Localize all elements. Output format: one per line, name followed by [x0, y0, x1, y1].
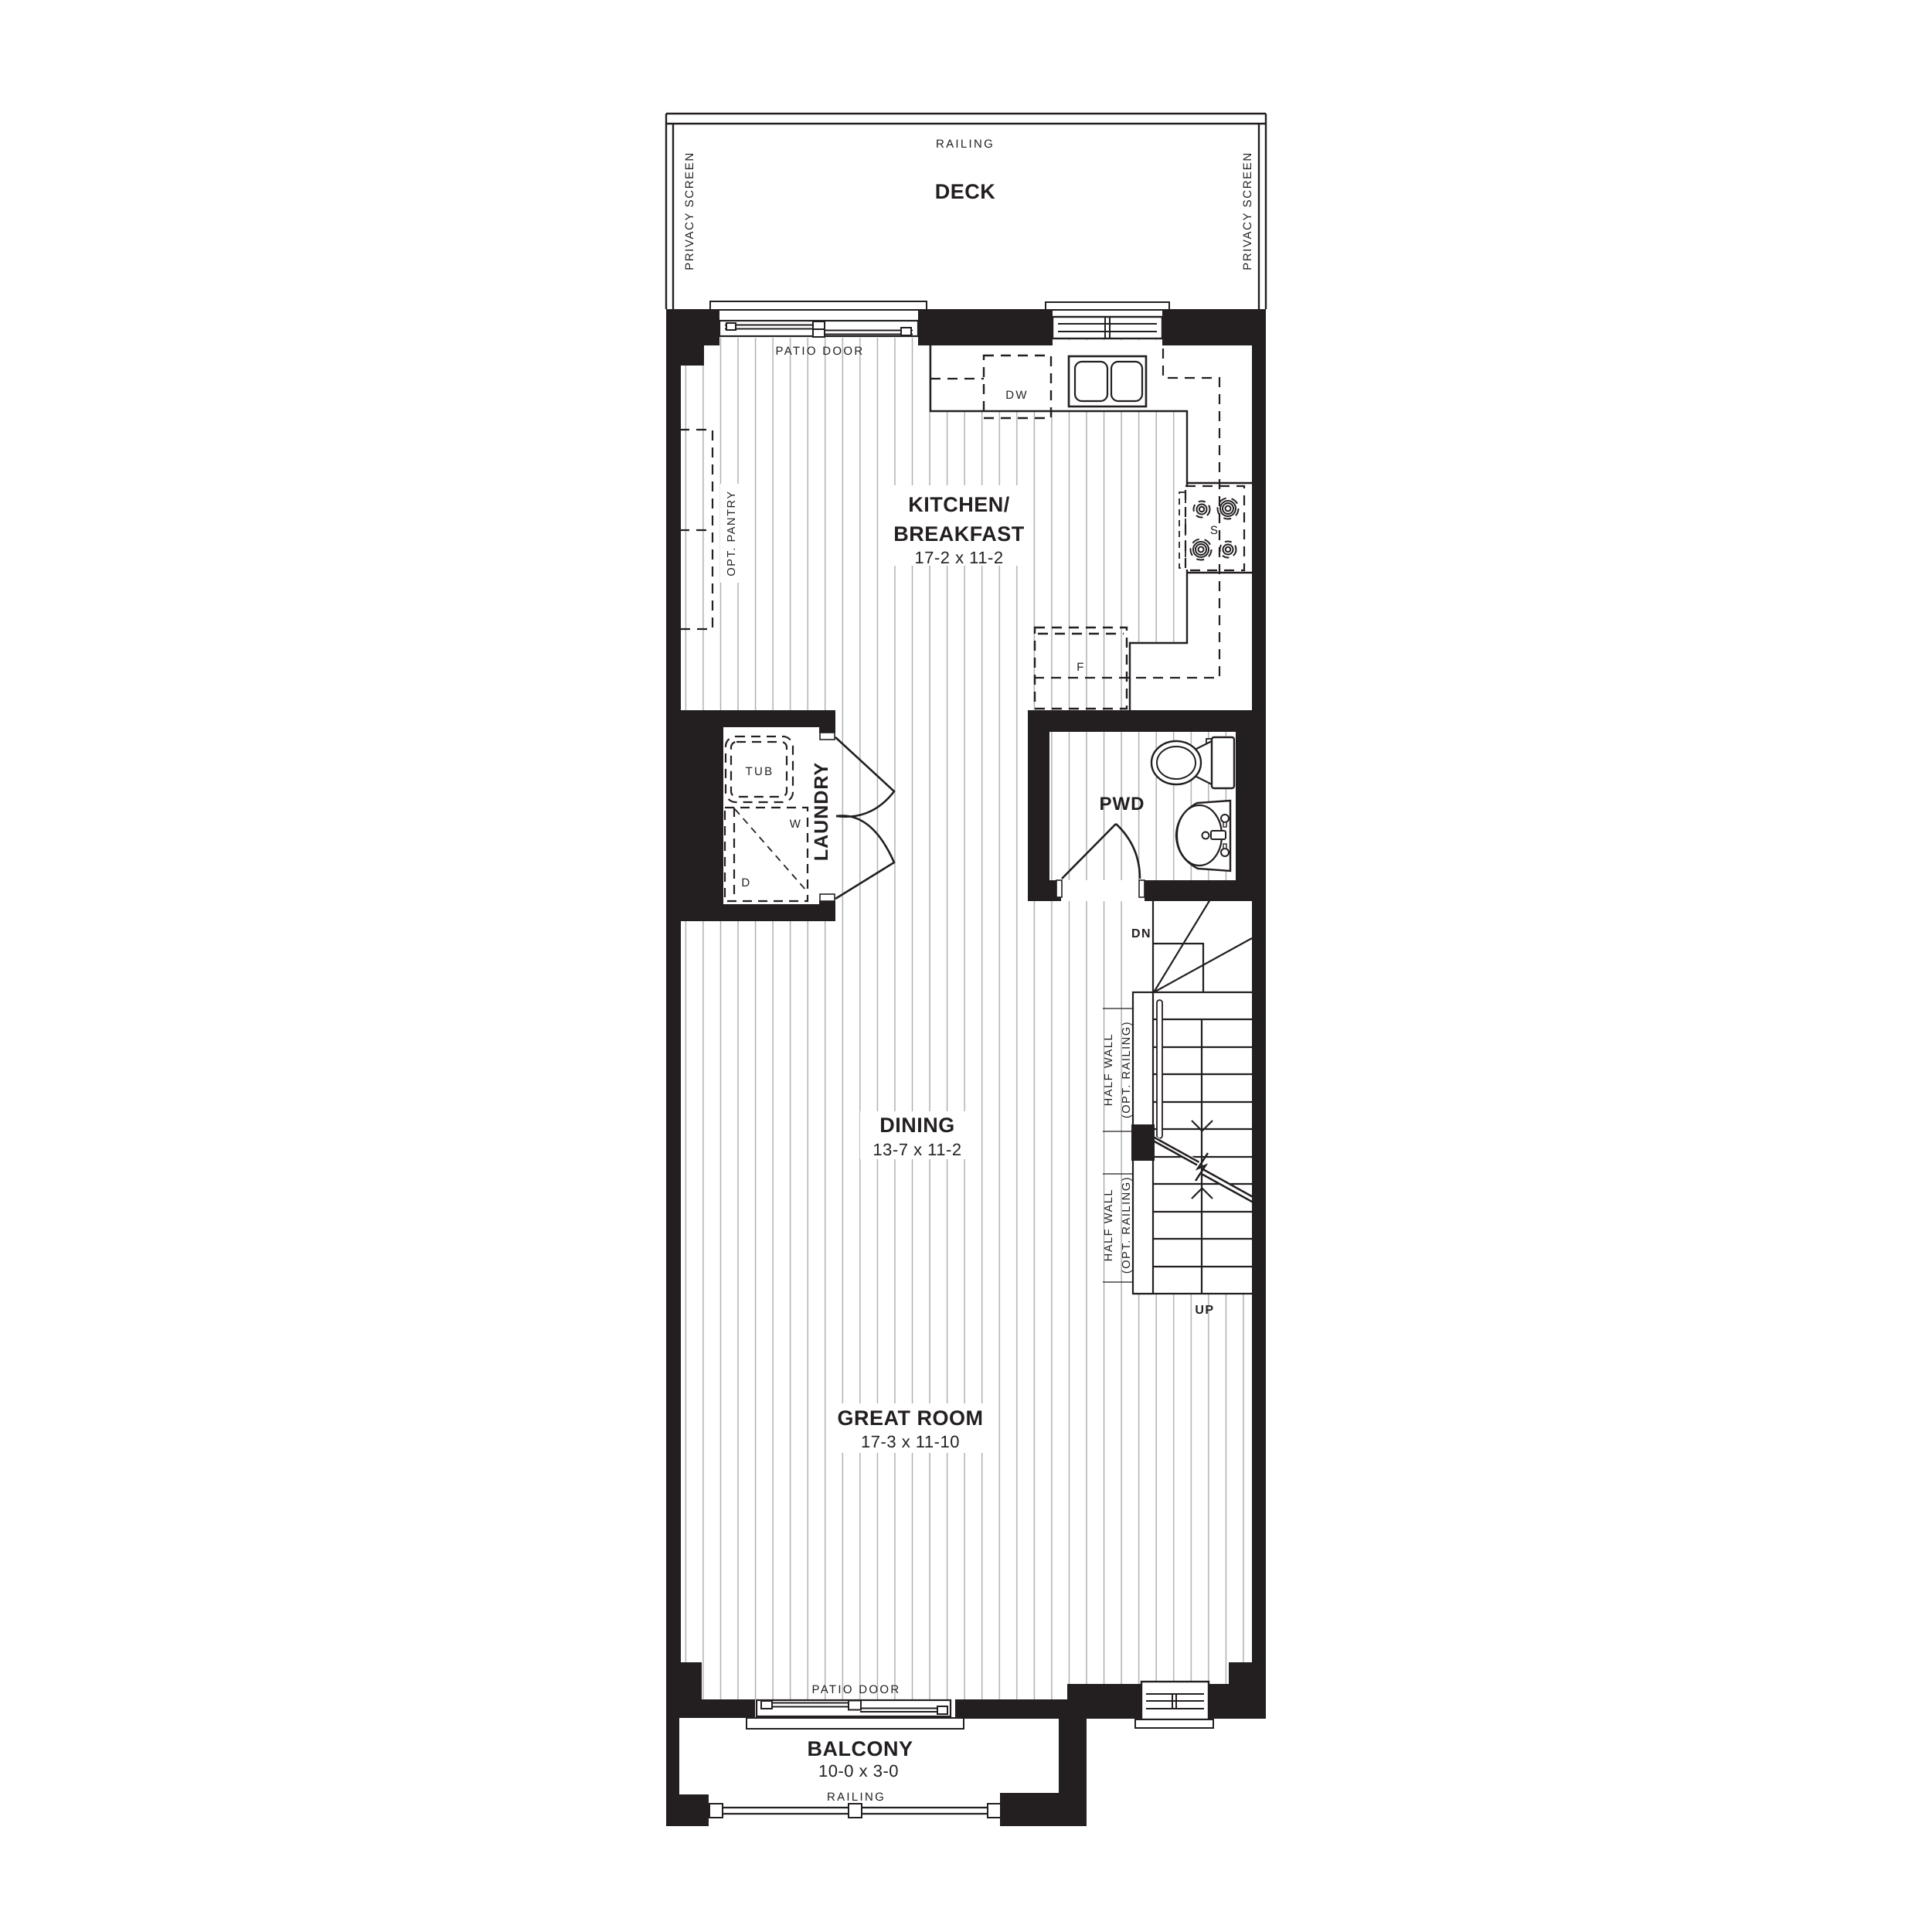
- svg-text:PWD: PWD: [1100, 794, 1145, 815]
- svg-text:DECK: DECK: [935, 180, 996, 203]
- svg-text:(OPT. RAILING): (OPT. RAILING): [1121, 1176, 1133, 1274]
- svg-text:F: F: [1077, 661, 1085, 674]
- svg-text:KITCHEN/: KITCHEN/: [908, 493, 1010, 516]
- svg-text:UP: UP: [1195, 1304, 1214, 1317]
- svg-text:DN: DN: [1131, 927, 1151, 940]
- svg-text:17-2 x 11-2: 17-2 x 11-2: [914, 548, 1003, 567]
- svg-text:17-3 x 11-10: 17-3 x 11-10: [861, 1432, 960, 1451]
- svg-text:OPT. PANTRY: OPT. PANTRY: [726, 490, 738, 576]
- svg-text:DINING: DINING: [879, 1114, 955, 1137]
- svg-text:(OPT. RAILING): (OPT. RAILING): [1121, 1021, 1133, 1118]
- svg-text:HALF WALL: HALF WALL: [1103, 1033, 1115, 1106]
- svg-text:10-0 x 3-0: 10-0 x 3-0: [818, 1761, 899, 1781]
- svg-text:D: D: [741, 876, 751, 889]
- svg-text:BREAKFAST: BREAKFAST: [893, 522, 1025, 546]
- svg-text:GREAT ROOM: GREAT ROOM: [838, 1406, 984, 1430]
- svg-text:13-7 x 11-2: 13-7 x 11-2: [872, 1140, 961, 1159]
- svg-text:S: S: [1210, 524, 1219, 537]
- svg-text:HALF WALL: HALF WALL: [1103, 1189, 1115, 1261]
- svg-text:PRIVACY SCREEN: PRIVACY SCREEN: [683, 151, 696, 270]
- svg-text:RAILING: RAILING: [936, 138, 995, 151]
- svg-text:LAUNDRY: LAUNDRY: [811, 762, 832, 861]
- svg-text:PATIO DOOR: PATIO DOOR: [776, 345, 865, 358]
- svg-text:PATIO DOOR: PATIO DOOR: [812, 1683, 901, 1696]
- svg-text:BALCONY: BALCONY: [808, 1737, 913, 1760]
- svg-text:TUB: TUB: [746, 765, 774, 778]
- svg-text:PRIVACY SCREEN: PRIVACY SCREEN: [1241, 151, 1254, 270]
- svg-text:DW: DW: [1005, 389, 1029, 402]
- svg-text:RAILING: RAILING: [827, 1791, 886, 1804]
- svg-text:W: W: [790, 818, 802, 831]
